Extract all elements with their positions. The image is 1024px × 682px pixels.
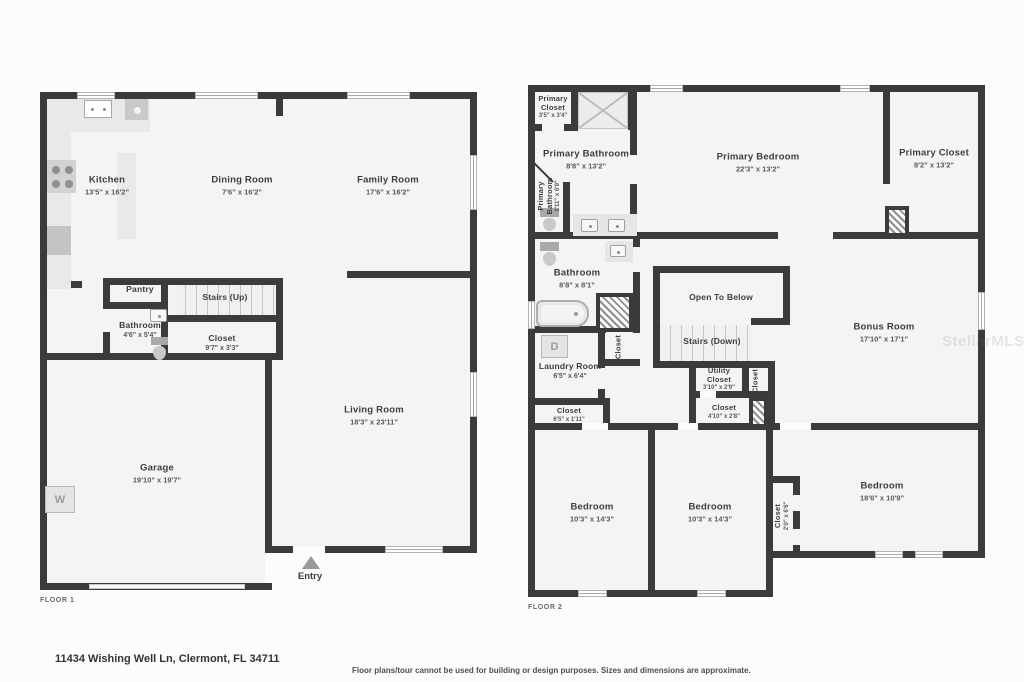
- room-label-closet-hall: Closet: [615, 335, 624, 359]
- wall: [633, 239, 640, 247]
- wall: [633, 272, 640, 333]
- wall: [564, 124, 578, 131]
- room-label-utility-closet: Utility Closet 3'10" x 2'9": [699, 367, 739, 391]
- window: [650, 85, 683, 92]
- wall: [103, 302, 168, 309]
- window: [195, 92, 258, 99]
- room-label-bonus: Bonus Room 17'10" x 17'1": [853, 323, 914, 344]
- floor1-garage-area: [47, 546, 265, 583]
- wall: [793, 511, 800, 529]
- room-label-closet-bedroom: Closet 2'0" x 6'6": [774, 502, 790, 531]
- disclaimer-text: Floor plans/tour cannot be used for buil…: [352, 666, 751, 675]
- range-icon: [125, 99, 148, 120]
- room-label-laundry: Laundry Room 6'5" x 6'4": [539, 362, 601, 380]
- room-label-closet-laundry: Closet 6'5" x 1'11": [553, 407, 585, 423]
- room-label-open-to-below: Open To Below: [689, 293, 753, 303]
- window: [385, 546, 443, 553]
- wall: [598, 359, 640, 366]
- wall: [883, 92, 890, 184]
- wall: [276, 99, 283, 116]
- door-gap: [700, 391, 716, 398]
- dryer-label: D: [551, 341, 559, 353]
- room-label-primary-bathroom-small: Primary Bathroom 2'11" x 6'9": [537, 164, 561, 228]
- window: [978, 292, 985, 330]
- wall: [528, 124, 542, 131]
- room-label-primary-closet-small: Primary Closet 3'5" x 3'4": [531, 95, 575, 119]
- window: [578, 590, 607, 597]
- bathroom2-toilet-tank-icon: [540, 242, 559, 251]
- dishwasher-icon: [47, 226, 71, 255]
- wall: [265, 360, 272, 553]
- stove-icon: [47, 160, 76, 193]
- shower-icon: [578, 92, 628, 129]
- floor1-tag: FLOOR 1: [40, 597, 75, 604]
- room-label-living: Living Room 18'3" x 23'11": [344, 406, 404, 427]
- wall: [793, 483, 800, 495]
- wall: [833, 232, 985, 239]
- window: [77, 92, 115, 99]
- entry-marker-icon: [302, 556, 320, 569]
- wall: [653, 266, 790, 273]
- wall: [653, 266, 660, 368]
- wall: [347, 271, 477, 278]
- garage-door: [89, 584, 245, 589]
- entry-opening: [293, 546, 325, 553]
- dryer-box: D: [541, 335, 568, 358]
- wall: [528, 326, 606, 333]
- wall: [751, 318, 790, 325]
- wall: [630, 85, 637, 155]
- room-label-bathroom2: Bathroom 8'8" x 8'1": [554, 269, 600, 290]
- kitchen-sink-icon: [84, 100, 112, 118]
- room-label-primary-closet: Primary Closet 8'2" x 13'2": [899, 149, 969, 170]
- room-label-dining: Dining Room 7'6" x 16'2": [211, 176, 272, 197]
- door-gap: [780, 423, 811, 430]
- watermark: StellarMLS: [942, 333, 1024, 350]
- property-address: 11434 Wishing Well Ln, Clermont, FL 3471…: [55, 653, 279, 665]
- room-label-stairs-down: Stairs (Down): [683, 337, 740, 347]
- hatch-panel: [749, 397, 768, 428]
- room-label-closet-hall2: Closet 4'10" x 2'8": [708, 404, 740, 420]
- room-label-pantry: Pantry: [126, 285, 154, 295]
- floor1-area: [47, 99, 470, 546]
- washer-box: W: [45, 486, 75, 513]
- room-label-stairs-up: Stairs (Up): [202, 293, 247, 303]
- door-gap: [678, 423, 698, 430]
- room-label-bathroom1: Bathroom 4'6" x 5'4": [119, 321, 161, 339]
- wall: [528, 232, 778, 239]
- window: [915, 551, 943, 558]
- window: [528, 301, 535, 329]
- window: [347, 92, 410, 99]
- door-gap: [582, 423, 608, 430]
- room-label-bedroom1: Bedroom 10'3" x 14'3": [570, 503, 614, 524]
- window: [470, 372, 477, 417]
- wall: [563, 182, 570, 232]
- room-label-garage: Garage 19'10" x 19'7": [133, 464, 181, 485]
- room-label-closet1: Closet 9'7" x 3'3": [205, 334, 238, 352]
- wall: [40, 92, 47, 590]
- room-label-kitchen: Kitchen 13'5" x 16'2": [85, 176, 129, 197]
- wall: [528, 398, 610, 405]
- hatch-panel: [596, 293, 633, 332]
- wall: [793, 545, 800, 551]
- washer-label: W: [55, 494, 65, 506]
- primary-bath-sink1-icon: [581, 219, 598, 232]
- room-label-family: Family Room 17'6" x 16'2": [357, 176, 419, 197]
- room-label-primary-bedroom: Primary Bedroom 22'3" x 13'2": [717, 153, 800, 174]
- window: [840, 85, 870, 92]
- bathroom2-sink-icon: [610, 245, 626, 257]
- wall: [768, 368, 775, 430]
- wall: [766, 476, 800, 483]
- wall: [766, 430, 773, 597]
- wall: [528, 85, 985, 92]
- window: [697, 590, 726, 597]
- stove-burners: [52, 166, 60, 174]
- kitchen-counter-left: [47, 99, 71, 289]
- room-label-bedroom2: Bedroom 10'3" x 14'3": [688, 503, 732, 524]
- wall: [689, 368, 696, 430]
- wall: [783, 266, 790, 325]
- wall: [103, 332, 110, 360]
- primary-bath-sink2-icon: [608, 219, 625, 232]
- floor-plan-page: W D Kitchen 13'5" x 16'2" Dining Room 7'…: [0, 0, 1024, 682]
- entry-label: Entry: [298, 571, 322, 582]
- wall: [168, 315, 283, 322]
- floor2-tag: FLOOR 2: [528, 604, 563, 611]
- window: [875, 551, 903, 558]
- bathtub-icon: [536, 300, 589, 327]
- room-label-bedroom3: Bedroom 18'6" x 10'9": [860, 482, 904, 503]
- window: [470, 155, 477, 210]
- wall: [648, 430, 655, 597]
- room-label-closet-stairs: Closet: [752, 369, 761, 393]
- hatch-panel: [885, 206, 909, 237]
